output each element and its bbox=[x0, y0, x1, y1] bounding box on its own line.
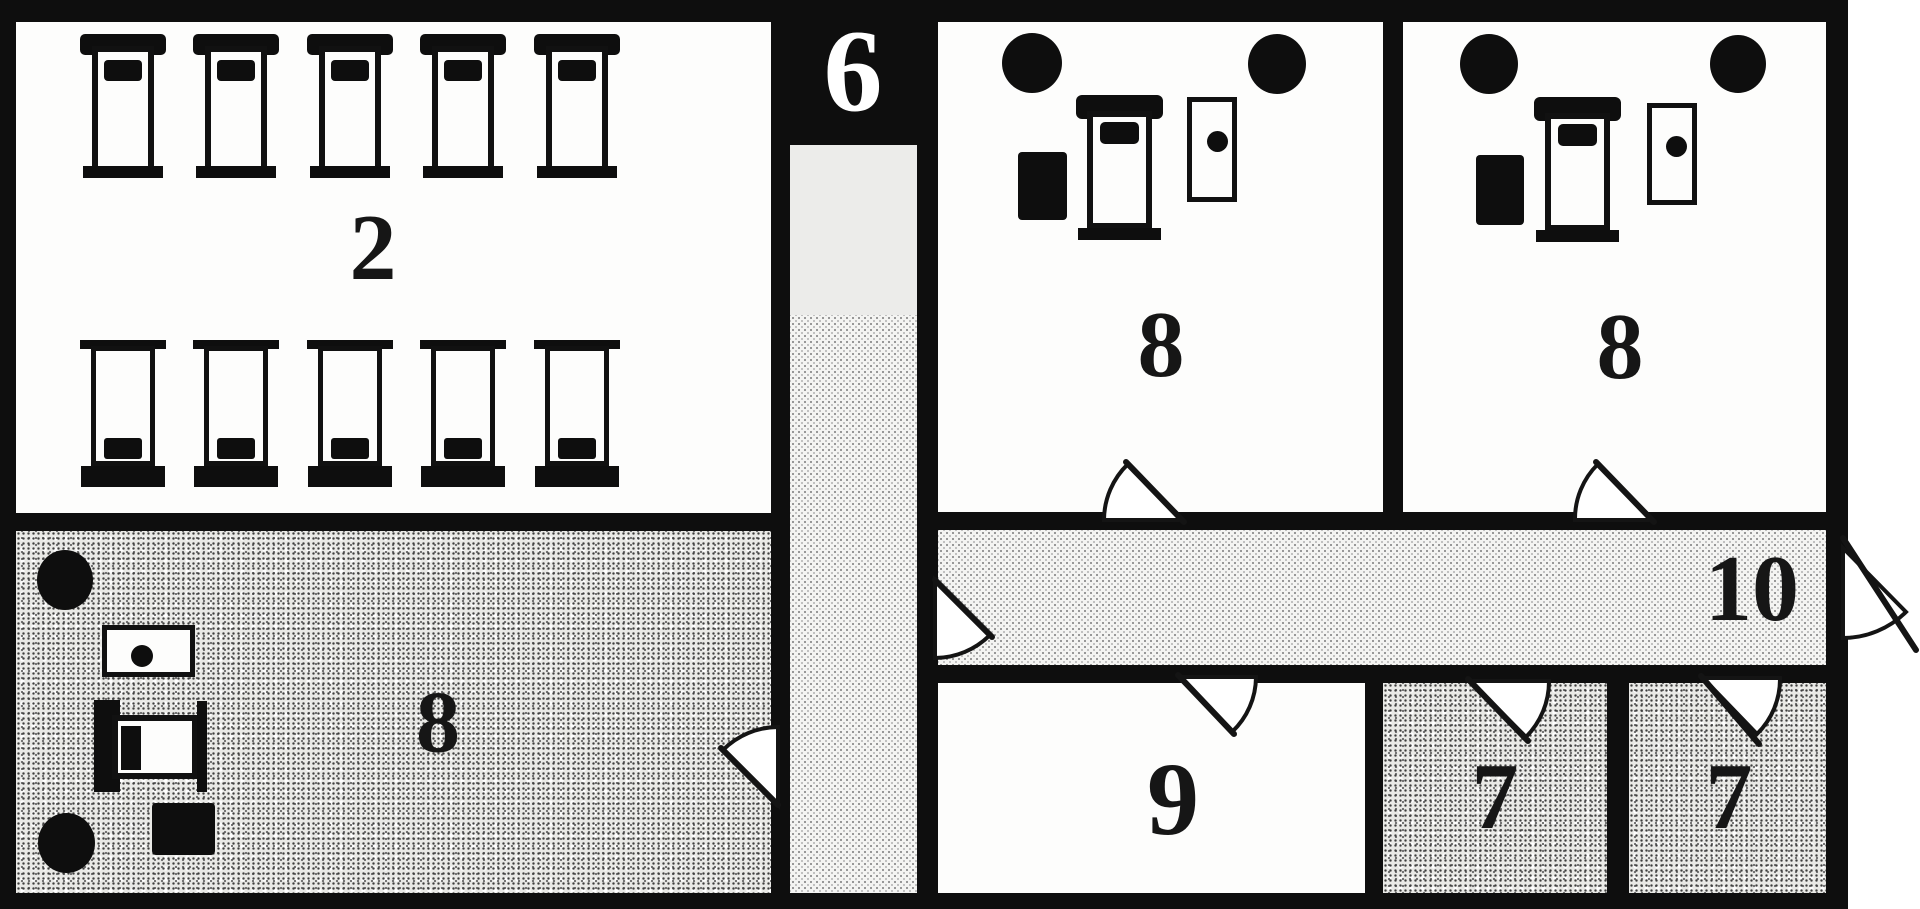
door-arcs-layer bbox=[0, 0, 1920, 909]
door-swing-icon bbox=[1178, 675, 1256, 734]
door-swing-icon bbox=[1843, 538, 1916, 650]
door-swing-icon bbox=[1468, 679, 1549, 741]
door-swing-icon bbox=[721, 727, 778, 805]
door-swing-icon bbox=[1701, 676, 1780, 744]
door-swing-icon bbox=[935, 580, 992, 658]
door-swing-icon bbox=[1575, 462, 1654, 522]
door-swing-icon bbox=[1104, 462, 1184, 522]
floorplan-map: 2 6 8 8 8 9 7 7 10 bbox=[0, 0, 1920, 909]
